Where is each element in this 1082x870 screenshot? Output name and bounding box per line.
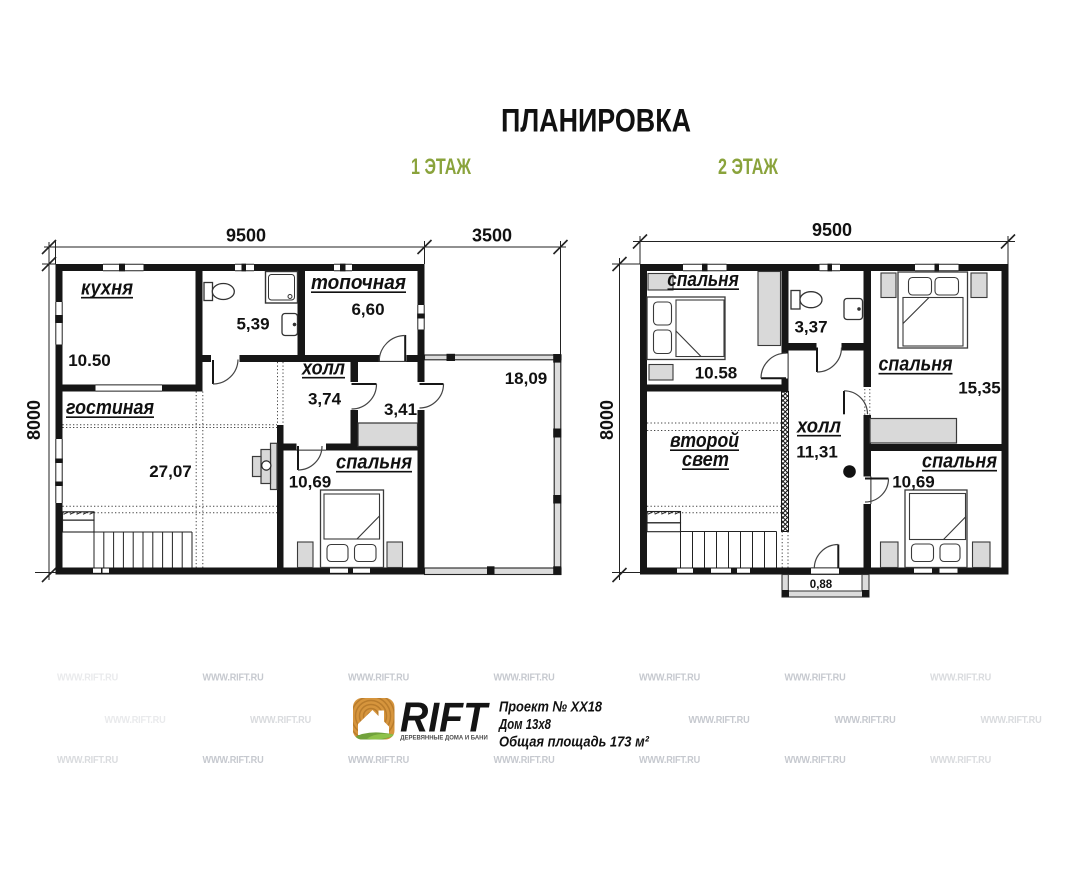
svg-text:WWW.RIFT.RU: WWW.RIFT.RU [348,754,409,766]
svg-text:Проект № XX18: Проект № XX18 [499,699,603,716]
svg-text:холл: холл [796,416,841,438]
svg-text:3,37: 3,37 [794,318,827,337]
svg-text:9500: 9500 [226,226,266,246]
svg-text:3,41: 3,41 [384,400,417,419]
svg-text:WWW.RIFT.RU: WWW.RIFT.RU [785,754,846,766]
svg-text:спальня: спальня [879,354,953,376]
svg-text:Общая площадь 173 м²: Общая площадь 173 м² [499,734,650,751]
svg-text:WWW.RIFT.RU: WWW.RIFT.RU [494,754,555,766]
svg-text:11,31: 11,31 [796,443,838,462]
svg-text:WWW.RIFT.RU: WWW.RIFT.RU [105,714,166,726]
svg-text:2 ЭТАЖ: 2 ЭТАЖ [718,154,778,179]
svg-text:WWW.RIFT.RU: WWW.RIFT.RU [930,672,991,684]
svg-text:WWW.RIFT.RU: WWW.RIFT.RU [785,672,846,684]
svg-text:WWW.RIFT.RU: WWW.RIFT.RU [981,714,1042,726]
svg-text:WWW.RIFT.RU: WWW.RIFT.RU [348,672,409,684]
svg-text:гостиная: гостиная [66,397,154,419]
svg-text:27,07: 27,07 [149,462,192,481]
svg-text:WWW.RIFT.RU: WWW.RIFT.RU [639,672,700,684]
svg-text:WWW.RIFT.RU: WWW.RIFT.RU [639,754,700,766]
svg-text:0,88: 0,88 [810,579,833,591]
svg-text:спальня: спальня [667,269,739,291]
svg-text:1 ЭТАЖ: 1 ЭТАЖ [411,154,471,179]
svg-text:3,74: 3,74 [308,390,342,409]
svg-text:WWW.RIFT.RU: WWW.RIFT.RU [203,672,264,684]
svg-text:спальня: спальня [336,452,412,474]
svg-text:10.58: 10.58 [695,364,738,383]
svg-text:WWW.RIFT.RU: WWW.RIFT.RU [57,754,118,766]
svg-text:8000: 8000 [597,400,617,440]
svg-text:свет: свет [682,449,729,471]
svg-text:кухня: кухня [81,278,133,300]
svg-text:WWW.RIFT.RU: WWW.RIFT.RU [689,714,750,726]
svg-text:5,39: 5,39 [236,315,269,334]
svg-text:WWW.RIFT.RU: WWW.RIFT.RU [494,672,555,684]
svg-text:8000: 8000 [24,400,44,440]
svg-text:WWW.RIFT.RU: WWW.RIFT.RU [57,672,118,684]
svg-text:ДЕРЕВЯННЫЕ ДОМА И БАНИ: ДЕРЕВЯННЫЕ ДОМА И БАНИ [400,735,488,742]
svg-text:ПЛАНИРОВКА: ПЛАНИРОВКА [501,103,691,139]
svg-text:10,69: 10,69 [892,473,935,492]
svg-text:Дом 13х8: Дом 13х8 [497,716,551,733]
svg-text:6,60: 6,60 [351,300,384,319]
svg-text:3500: 3500 [472,226,512,246]
svg-text:WWW.RIFT.RU: WWW.RIFT.RU [203,754,264,766]
svg-text:RIFT: RIFT [400,694,490,741]
svg-text:10,69: 10,69 [289,473,332,492]
svg-text:WWW.RIFT.RU: WWW.RIFT.RU [835,714,896,726]
svg-text:холл: холл [301,358,345,380]
svg-text:спальня: спальня [922,451,997,473]
svg-text:9500: 9500 [812,220,852,240]
svg-text:WWW.RIFT.RU: WWW.RIFT.RU [930,754,991,766]
svg-text:топочная: топочная [311,272,406,294]
svg-text:10.50: 10.50 [68,351,111,370]
svg-text:18,09: 18,09 [505,369,548,388]
svg-text:WWW.RIFT.RU: WWW.RIFT.RU [250,714,311,726]
svg-text:15,35: 15,35 [958,379,1001,398]
